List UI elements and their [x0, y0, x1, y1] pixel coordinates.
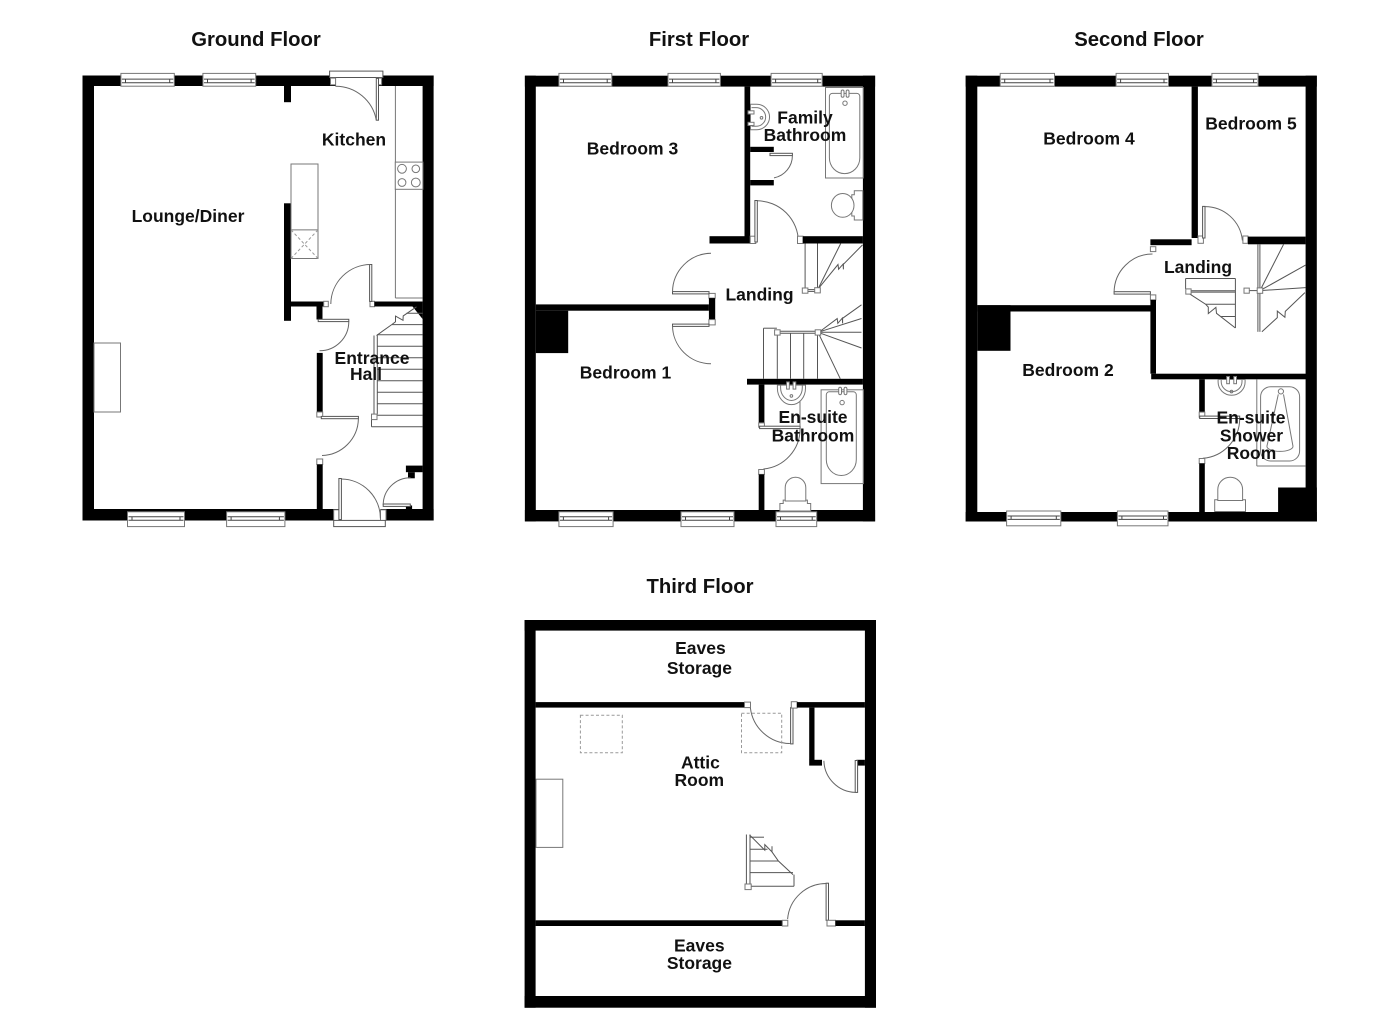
svg-text:Room: Room	[675, 770, 725, 790]
svg-text:En-suite: En-suite	[778, 407, 847, 427]
svg-text:Bedroom 3: Bedroom 3	[587, 139, 679, 159]
svg-text:Second Floor: Second Floor	[1074, 29, 1204, 51]
svg-text:Bedroom 1: Bedroom 1	[580, 363, 672, 383]
svg-text:Ground Floor: Ground Floor	[191, 29, 321, 51]
svg-text:Storage: Storage	[667, 953, 732, 973]
svg-text:Landing: Landing	[725, 285, 793, 305]
svg-text:First Floor: First Floor	[649, 29, 749, 51]
svg-text:Eaves: Eaves	[675, 638, 726, 658]
svg-text:Landing: Landing	[1164, 257, 1232, 277]
svg-text:Hall: Hall	[350, 364, 382, 384]
svg-text:Room: Room	[1227, 443, 1277, 463]
svg-text:Storage: Storage	[667, 658, 732, 678]
svg-text:Third Floor: Third Floor	[646, 576, 753, 598]
svg-text:Bedroom 4: Bedroom 4	[1043, 129, 1135, 149]
svg-text:Bedroom 2: Bedroom 2	[1022, 360, 1114, 380]
svg-text:Kitchen: Kitchen	[322, 130, 386, 150]
svg-text:Lounge/Diner: Lounge/Diner	[132, 206, 245, 226]
svg-text:Bathroom: Bathroom	[764, 125, 847, 145]
svg-text:Bedroom 5: Bedroom 5	[1205, 114, 1297, 134]
svg-text:Bathroom: Bathroom	[772, 426, 855, 446]
